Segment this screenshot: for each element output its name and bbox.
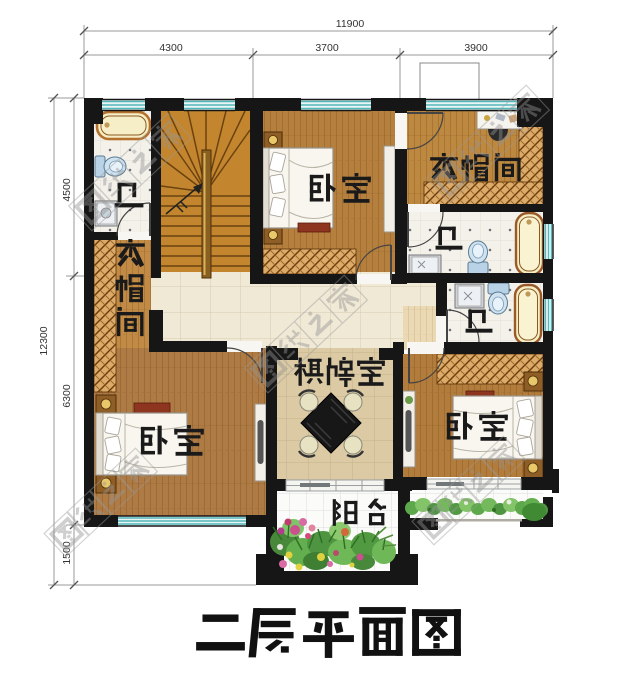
svg-text:6300: 6300	[61, 384, 73, 408]
svg-text:12300: 12300	[38, 326, 50, 355]
svg-text:4500: 4500	[61, 178, 73, 202]
svg-text:3700: 3700	[315, 42, 339, 54]
svg-text:4300: 4300	[159, 42, 183, 54]
svg-text:3900: 3900	[464, 42, 488, 54]
svg-text:11900: 11900	[336, 18, 365, 30]
